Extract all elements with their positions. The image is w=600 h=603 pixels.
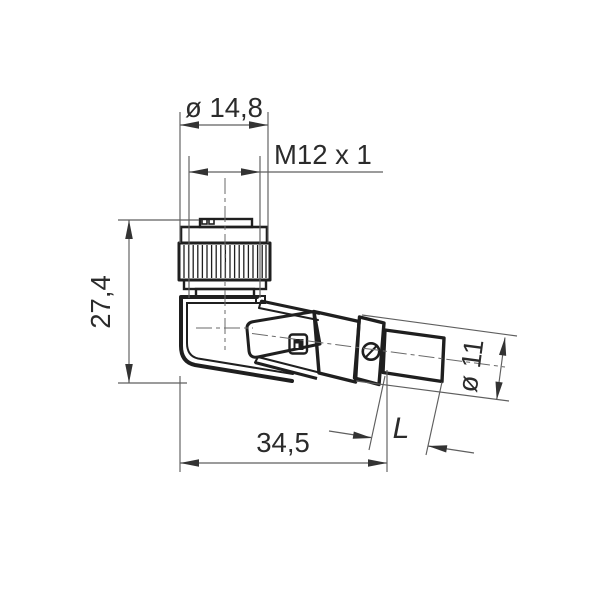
arrowhead [353,432,372,439]
arrowhead [241,168,260,176]
cable-free-length-label: L [393,412,410,445]
arrowhead [428,445,447,452]
connector-technical-drawing: ø 14,8 M12 x 1 27,4 34,5 L [0,0,600,603]
arrowhead [189,168,208,176]
clamp-screw [363,343,379,359]
tip-notch [202,219,207,224]
body-diameter-label: ø 11 [452,337,490,394]
arrowhead [125,220,133,239]
arrowhead [125,364,133,383]
knurl-diameter-label: ø 14,8 [185,92,263,123]
dim-overall-length: 34,5 [180,370,387,472]
cable [383,330,444,382]
drawing-canvas: ø 14,8 M12 x 1 27,4 34,5 L [0,0,600,603]
tip-notch [209,219,214,224]
arrowhead [496,382,503,400]
overall-length-label: 34,5 [256,427,310,458]
arrowhead [499,338,506,356]
thread-spec-label: M12 x 1 [274,139,372,170]
arrowhead [368,459,387,467]
connector-body-top [181,227,267,243]
arrowhead [180,459,199,467]
housing-rear-body [314,312,359,383]
connector-part [179,219,444,385]
overall-height-label: 27,4 [85,275,116,329]
